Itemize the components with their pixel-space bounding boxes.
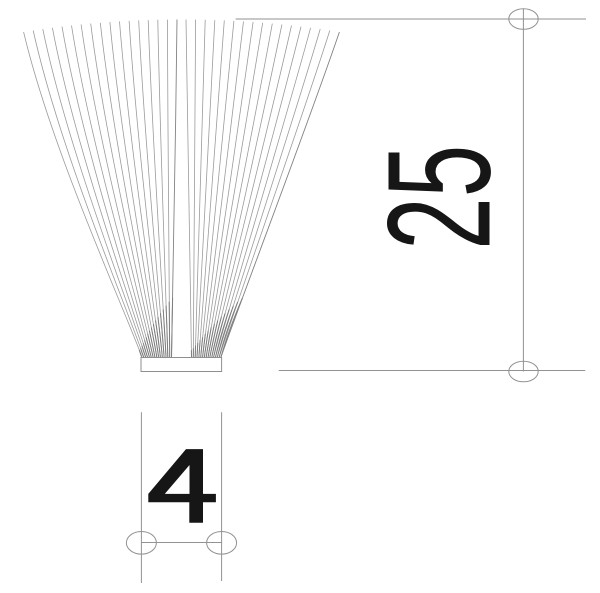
- svg-text:25: 25: [357, 145, 521, 250]
